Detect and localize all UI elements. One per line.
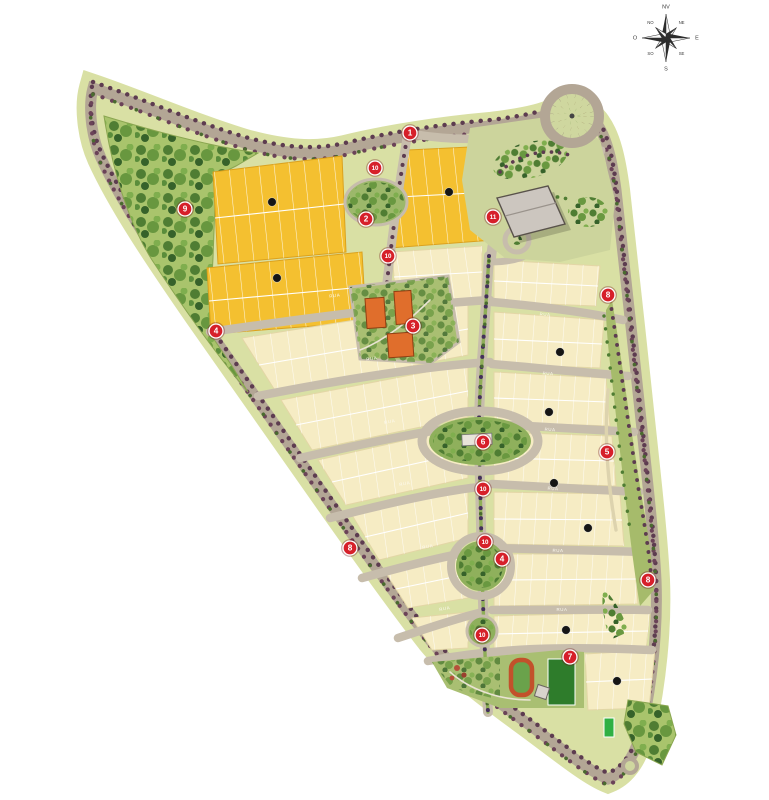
- map-marker-5: 5: [599, 444, 615, 460]
- running-track: [511, 660, 532, 695]
- entrance-roundabout: [545, 89, 599, 143]
- block-number-badge: [445, 188, 454, 197]
- street-name-label: RUA: [542, 371, 553, 377]
- block-number-badge: [562, 626, 571, 635]
- compass-label: SE: [679, 51, 685, 56]
- map-marker-4: 4: [208, 323, 224, 339]
- roundabout-center: [570, 114, 575, 119]
- map-marker-9: 9: [177, 201, 193, 217]
- site-plan-canvas: RUARUARUARUARUARUARUARUARUARUARUARUA 110…: [0, 0, 769, 800]
- club-building: [387, 332, 414, 358]
- map-marker-7: 7: [562, 649, 578, 665]
- block-number-badge: [550, 479, 559, 488]
- compass-center: [664, 36, 667, 39]
- block-cream: [494, 554, 638, 606]
- sports-field: [548, 659, 575, 705]
- sports-court: [604, 718, 614, 737]
- street-name-label: RUA: [556, 607, 567, 612]
- compass-label: SO: [647, 51, 654, 56]
- map-marker-8: 8: [600, 287, 616, 303]
- marker-number: 10: [372, 165, 379, 172]
- marker-number: 3: [411, 322, 416, 331]
- marker-number: 7: [568, 653, 573, 662]
- playground-icon: [450, 676, 455, 681]
- park-trees-icon: [348, 182, 404, 222]
- compass-label: NV: [662, 5, 670, 11]
- compass-label: NO: [647, 20, 654, 25]
- compass-label: NE: [679, 20, 685, 25]
- marker-number: 5: [605, 448, 610, 457]
- map-marker-2: 2: [358, 211, 374, 227]
- map-marker-8: 8: [640, 572, 656, 588]
- marker-number: 10: [385, 253, 392, 260]
- street-name-label: RUA: [552, 548, 563, 553]
- street-name-label: RUA: [544, 427, 555, 433]
- street-road: [492, 548, 644, 552]
- playground-icon: [454, 665, 460, 671]
- marker-number: 6: [481, 438, 486, 447]
- map-marker-10: 10: [474, 627, 490, 643]
- club-building: [365, 297, 386, 328]
- compass-label: O: [633, 36, 638, 42]
- club-area: [350, 276, 459, 363]
- compass-label: S: [664, 67, 668, 73]
- marker-number: 8: [606, 291, 611, 300]
- block-number-badge: [613, 677, 622, 686]
- map-marker-10: 10: [477, 534, 493, 550]
- compass-rose: NVNEESESSOONO: [633, 5, 699, 73]
- block-number-badge: [545, 408, 554, 417]
- compass-label: E: [695, 36, 699, 42]
- map-marker-10: 10: [475, 481, 491, 497]
- block-number-badge: [556, 348, 565, 357]
- marker-number: 8: [646, 576, 651, 585]
- block-cream: [494, 492, 624, 546]
- park-trees-icon: [459, 544, 503, 588]
- marker-number: 10: [482, 539, 489, 546]
- playground-icon: [461, 672, 466, 677]
- map-marker-6: 6: [475, 434, 491, 450]
- block-cream: [494, 312, 604, 368]
- block-cream: [494, 260, 600, 306]
- marker-number: 4: [214, 327, 219, 336]
- turnaround-circle: [623, 759, 637, 773]
- map-marker-10: 10: [367, 160, 383, 176]
- marker-number: 9: [183, 205, 188, 214]
- map-marker-4: 4: [494, 551, 510, 567]
- marker-number: 11: [490, 214, 497, 221]
- pocket-park: [345, 179, 407, 225]
- map-marker-3: 3: [405, 318, 421, 334]
- map-marker-1: 1: [402, 125, 418, 141]
- marker-number: 10: [479, 632, 486, 639]
- garden-trees-icon: [568, 197, 608, 227]
- block-number-badge: [273, 274, 282, 283]
- map-marker-8: 8: [342, 540, 358, 556]
- block-gold: [213, 156, 346, 264]
- street-name-label: RUA: [539, 312, 550, 318]
- masterplan-map: RUARUARUARUARUARUARUARUARUARUARUARUA 110…: [0, 0, 769, 800]
- marker-number: 10: [480, 486, 487, 493]
- block-number-badge: [268, 198, 277, 207]
- marker-number: 8: [348, 544, 353, 553]
- map-marker-11: 11: [485, 209, 501, 225]
- marker-number: 1: [408, 129, 413, 138]
- marker-number: 4: [500, 555, 505, 564]
- marker-number: 2: [364, 215, 369, 224]
- map-marker-10: 10: [380, 248, 396, 264]
- block-number-badge: [584, 524, 593, 533]
